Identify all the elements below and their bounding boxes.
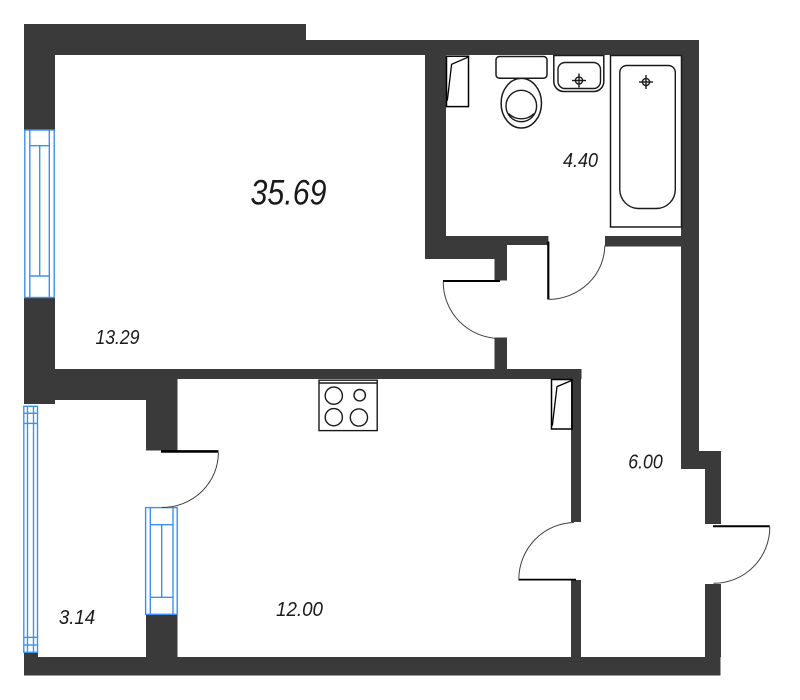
svg-text:12.00: 12.00 xyxy=(276,599,323,621)
svg-text:3.14: 3.14 xyxy=(59,607,95,629)
svg-text:35.69: 35.69 xyxy=(251,172,327,212)
svg-text:6.00: 6.00 xyxy=(628,451,663,473)
svg-text:13.29: 13.29 xyxy=(96,327,140,349)
svg-text:4.40: 4.40 xyxy=(563,150,598,172)
